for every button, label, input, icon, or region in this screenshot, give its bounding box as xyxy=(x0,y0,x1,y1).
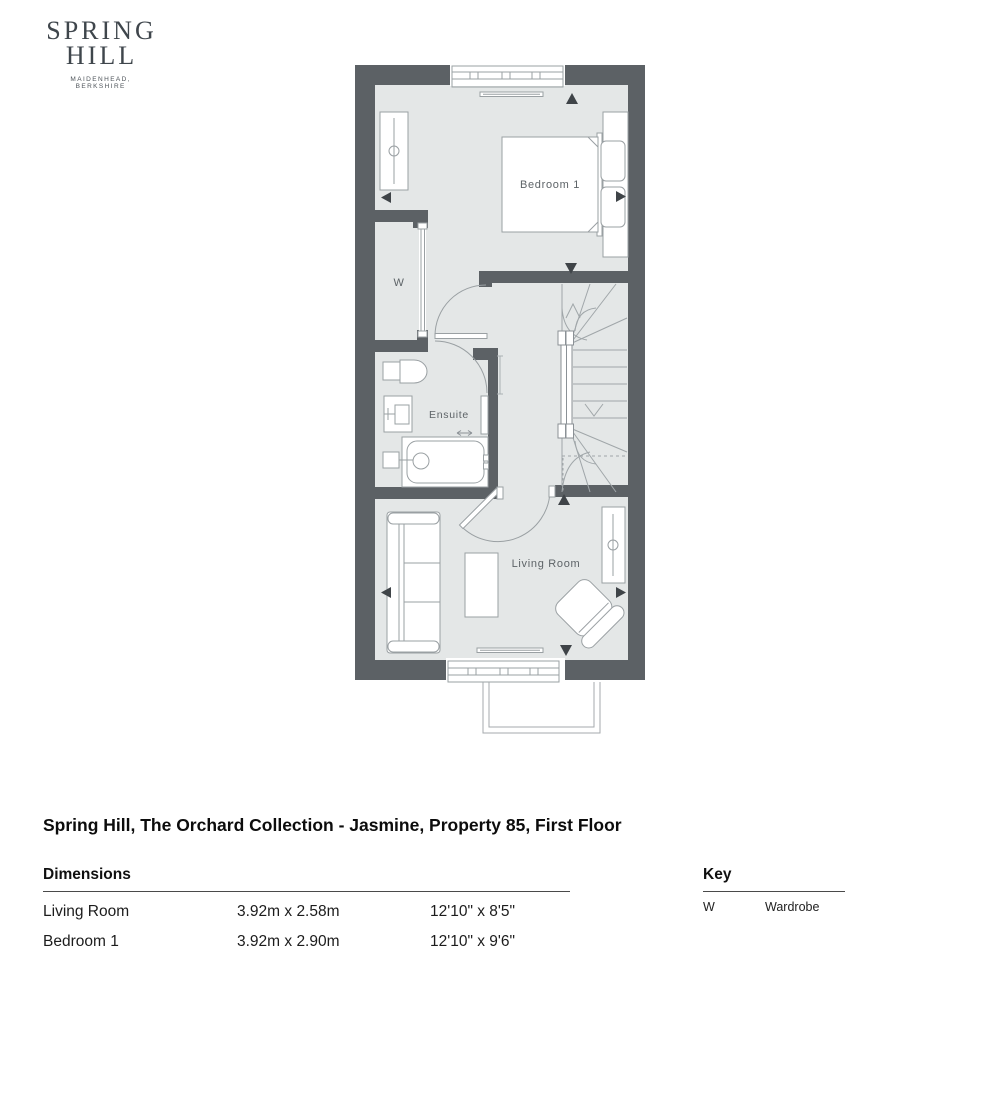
logo-line2: HILL xyxy=(44,44,159,69)
balcony xyxy=(483,682,600,733)
living-room-window xyxy=(446,658,565,682)
spring-hill-logo: SPRING HILL MAIDENHEAD, BERKSHIRE xyxy=(44,18,156,90)
pillow xyxy=(601,187,625,227)
floorplan-page: SPRING HILL MAIDENHEAD, BERKSHIRE xyxy=(0,0,1000,1100)
table-row: Living Room 3.92m x 2.58m 12'10" x 8'5" xyxy=(43,901,570,922)
pillow xyxy=(601,141,625,181)
room-name: Living Room xyxy=(43,901,237,922)
window-radiator xyxy=(480,92,543,97)
logo-subtitle: MAIDENHEAD, BERKSHIRE xyxy=(44,76,157,90)
washbasin xyxy=(384,396,412,432)
bedroom-window xyxy=(450,63,565,87)
imperial-size: 12'10" x 8'5" xyxy=(430,901,570,922)
key-symbol: W xyxy=(703,900,765,914)
key-legend: Key W Wardrobe xyxy=(703,866,845,914)
metric-size: 3.92m x 2.58m xyxy=(237,901,430,922)
key-meaning: Wardrobe xyxy=(765,900,819,914)
bedroom-wardrobe-unit xyxy=(603,112,628,257)
sofa xyxy=(387,512,440,653)
dimensions-heading: Dimensions xyxy=(43,866,570,892)
bedroom1-label: Bedroom 1 xyxy=(520,179,580,191)
floorplan-drawing: Bedroom 1 W Ensuite Living Room xyxy=(350,58,650,740)
window-radiator-bottom xyxy=(477,648,543,653)
metric-size: 3.92m x 2.90m xyxy=(237,931,430,952)
wardrobe-label: W xyxy=(393,277,404,289)
wardrobe-door xyxy=(418,223,427,337)
toilet xyxy=(383,360,427,383)
bedroom-radiator xyxy=(380,112,408,190)
page-title: Spring Hill, The Orchard Collection - Ja… xyxy=(43,815,622,836)
coffee-table xyxy=(465,553,498,617)
living-room-label: Living Room xyxy=(512,558,581,570)
imperial-size: 12'10" x 9'6" xyxy=(430,931,570,952)
room-name: Bedroom 1 xyxy=(43,931,237,952)
ensuite-label: Ensuite xyxy=(429,409,469,421)
table-row: Bedroom 1 3.92m x 2.90m 12'10" x 9'6" xyxy=(43,931,570,952)
key-entry: W Wardrobe xyxy=(703,900,845,914)
key-heading: Key xyxy=(703,866,845,892)
living-room-radiator xyxy=(602,507,625,583)
dimensions-table: Dimensions Living Room 3.92m x 2.58m 12'… xyxy=(43,866,570,952)
